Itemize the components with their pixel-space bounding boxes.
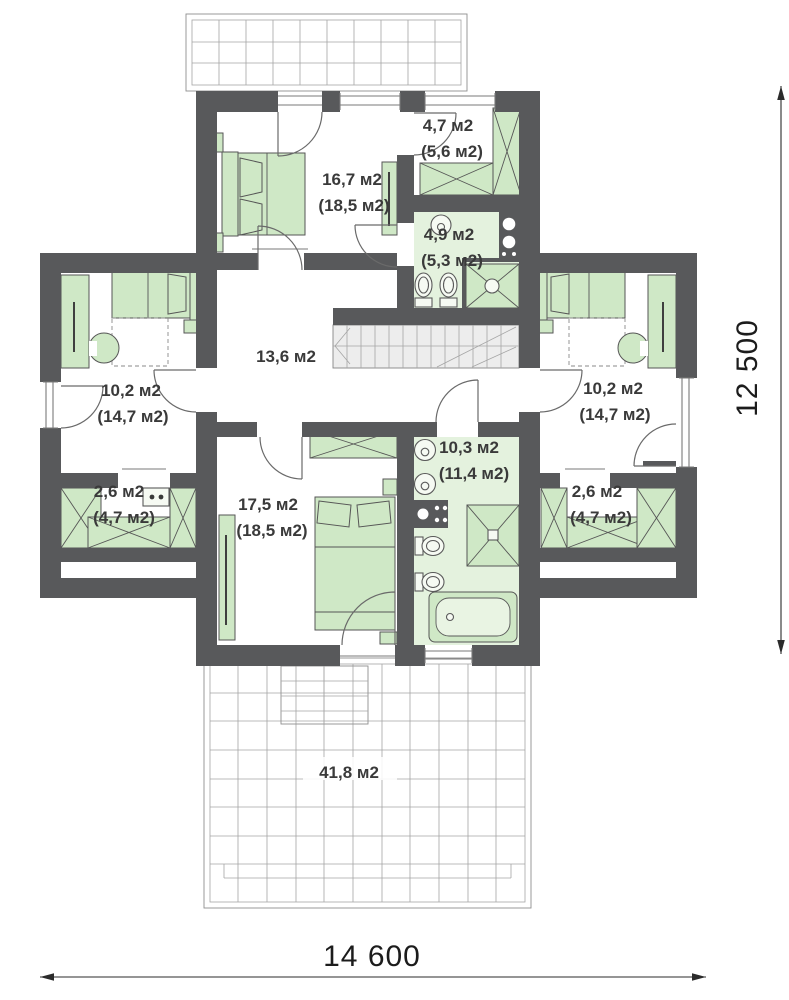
terrace-steps <box>281 666 368 724</box>
toilet-icon <box>440 273 457 307</box>
toilet-icon <box>415 537 444 556</box>
washer-icon <box>143 488 169 506</box>
room-area-label: (18,5 м2) <box>318 196 389 215</box>
room-area-label: 17,5 м2 <box>238 495 298 514</box>
room-area-label: 2,6 м2 <box>94 482 144 501</box>
room-area-label: 10,2 м2 <box>583 379 643 398</box>
door-icon <box>278 112 322 156</box>
room-area-label: 13,6 м2 <box>256 347 316 366</box>
terrace-grid <box>210 664 525 902</box>
room-area-label: 4,7 м2 <box>423 116 473 135</box>
dimension-arrow-icon <box>777 640 785 654</box>
dimension-arrow-icon <box>40 973 54 981</box>
room-area-label: (18,5 м2) <box>236 521 307 540</box>
chair-icon <box>89 333 119 363</box>
room-area-label: 4,9 м2 <box>424 225 474 244</box>
dimension-bottom: 14 600 <box>40 940 706 981</box>
room-area-label: 10,2 м2 <box>101 381 161 400</box>
terrace-bottom <box>204 658 531 908</box>
floor-plan-page: 16,7 м2 (18,5 м2) 4,7 м2 (5,6 м2) 4,9 м2… <box>0 0 789 1000</box>
room-area-label: (14,7 м2) <box>579 405 650 424</box>
sink-icon <box>415 474 436 495</box>
door-icon <box>540 370 582 412</box>
room-area-label: (5,3 м2) <box>421 251 483 270</box>
terrace-grid <box>192 20 461 85</box>
dimension-arrow-icon <box>692 973 706 981</box>
bathtub-icon <box>429 592 517 642</box>
bed-icon <box>533 268 625 366</box>
window-icon <box>340 93 400 110</box>
dimension-width-label: 14 600 <box>323 940 421 973</box>
dimension-right: 12 500 <box>731 86 785 654</box>
window-icon <box>679 378 694 467</box>
room-area-label: (4,7 м2) <box>570 508 632 527</box>
toilet-icon <box>415 573 444 592</box>
desk-icon <box>219 515 235 640</box>
bed-icon <box>112 268 204 366</box>
room-area-label: 41,8 м2 <box>319 763 379 782</box>
door-icon <box>260 437 302 479</box>
toilet-icon <box>415 273 432 307</box>
desk-icon <box>61 275 89 368</box>
bed-icon <box>315 479 397 644</box>
window-icon <box>43 382 58 428</box>
chair-icon <box>618 333 648 363</box>
staircase <box>333 325 519 368</box>
room-area-label: 10,3 м2 <box>439 438 499 457</box>
sink-icon <box>415 440 436 461</box>
room-area-label: (14,7 м2) <box>97 407 168 426</box>
room-area-label: (11,4 м2) <box>439 464 509 483</box>
bed-icon <box>207 133 305 252</box>
window-icon <box>425 648 472 663</box>
window-icon <box>425 93 495 110</box>
washer-icon <box>414 500 448 528</box>
room-area-label: (5,6 м2) <box>421 142 483 161</box>
terrace-top <box>186 14 467 91</box>
dimension-height-label: 12 500 <box>731 319 764 417</box>
room-area-label: (4,7 м2) <box>93 508 155 527</box>
door-icon <box>634 424 676 466</box>
desk-icon <box>648 275 676 368</box>
floor-plan-drawing: 16,7 м2 (18,5 м2) 4,7 м2 (5,6 м2) 4,9 м2… <box>0 0 789 1000</box>
shower-icon <box>467 505 519 566</box>
room-area-label: 2,6 м2 <box>572 482 622 501</box>
room-area-label: 16,7 м2 <box>322 170 382 189</box>
window-icon <box>278 96 322 105</box>
washer-icon <box>499 212 520 260</box>
door-icon <box>436 380 478 422</box>
dimension-arrow-icon <box>777 86 785 100</box>
